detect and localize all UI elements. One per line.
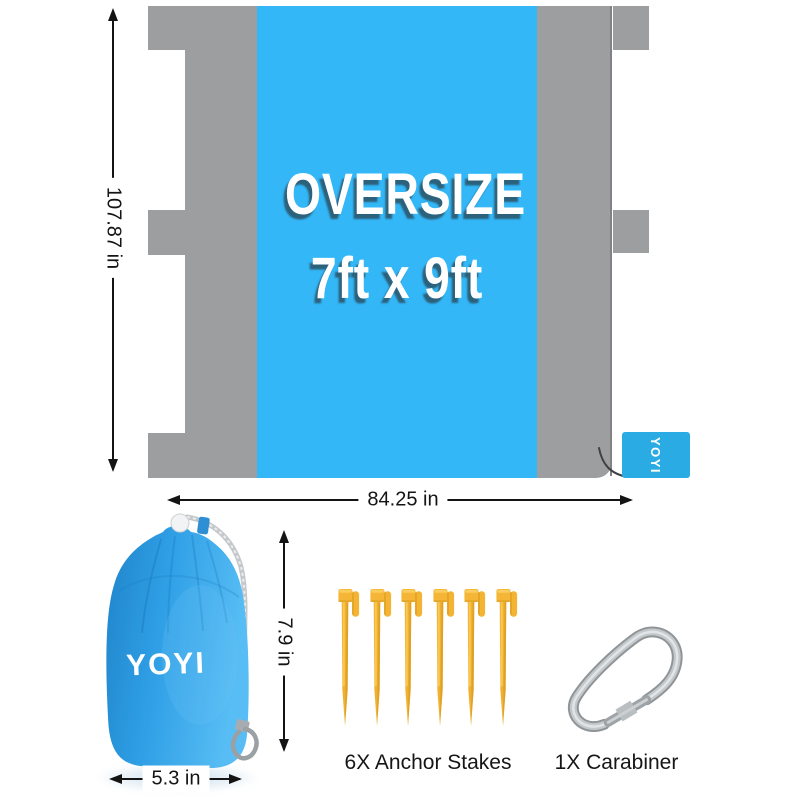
- blanket-center-panel: OVERSIZE 7ft x 9ft: [257, 6, 537, 478]
- blanket-tab-right-top: [613, 6, 649, 50]
- blanket-tab-right-middle: [613, 210, 649, 253]
- carabiner-caption: 1X Carabiner: [524, 751, 709, 775]
- bag-toggle-ball: [171, 514, 189, 532]
- arrowhead-down-icon: [108, 459, 118, 472]
- carabiner-illustration: [556, 612, 690, 748]
- blanket-brand-tag: YOYI: [622, 432, 690, 478]
- blanket-right-seam: [610, 6, 612, 476]
- blanket-tab-left-middle: [148, 210, 187, 255]
- anchor-stake: [392, 582, 424, 738]
- blanket-height-label: 107.87 in: [100, 178, 127, 278]
- anchor-stake: [329, 582, 361, 738]
- arrowhead-up-icon: [279, 530, 289, 543]
- product-infographic: OVERSIZE 7ft x 9ft YOYI 107.87 in 84.25 …: [0, 0, 800, 800]
- anchor-stake: [361, 582, 393, 738]
- blanket-tab-left-top: [148, 6, 187, 50]
- anchor-stake: [424, 582, 456, 738]
- blanket-width-label: 84.25 in: [358, 487, 447, 514]
- arrowhead-up-icon: [108, 8, 118, 21]
- blanket-tab-left-bottom: [148, 433, 187, 478]
- bag-cord-lock: [197, 516, 210, 534]
- bag-brand-label: YOYI: [115, 646, 216, 683]
- blanket-brand-tag-label: YOYI: [648, 436, 663, 473]
- arrowhead-left-icon: [109, 774, 122, 784]
- arrowhead-right-icon: [620, 495, 633, 505]
- oversize-label: OVERSIZE: [285, 166, 509, 224]
- arrowhead-right-icon: [229, 774, 242, 784]
- bag-width-label: 5.3 in: [143, 766, 210, 793]
- arrowhead-down-icon: [279, 739, 289, 752]
- anchor-stake: [455, 582, 487, 738]
- bag-height-label: 7.9 in: [271, 609, 298, 676]
- anchor-stake: [487, 582, 519, 738]
- stakes-caption: 6X Anchor Stakes: [318, 751, 538, 775]
- arrowhead-left-icon: [167, 495, 180, 505]
- blanket-size-label: 7ft x 9ft: [285, 250, 509, 308]
